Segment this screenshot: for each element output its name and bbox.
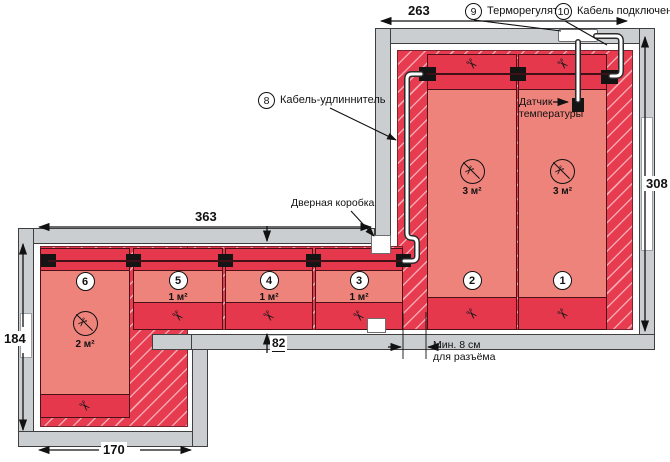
leader-extension-cable	[330, 108, 396, 140]
dim-hall-width: 363	[193, 209, 219, 224]
extension-cable-label: Кабель-удлиннитель	[280, 94, 386, 106]
min-gap-line2: для разъёма	[433, 351, 495, 363]
min-gap-label: Мин. 8 см для разъёма	[433, 339, 495, 363]
callout-9: 9	[465, 3, 482, 20]
heated-floor-plan: ✂ ✂ 3 м² 2 ✂ ✂ ✂ 3 м² 1 ✂ 3 1 м² ✂ 4 1 м…	[0, 0, 670, 462]
door-frame-label: Дверная коробка	[291, 197, 374, 209]
sensor-label-line2: температуры	[519, 108, 583, 120]
annotation-lines	[0, 0, 670, 462]
dim-hall-bottom-width: 170	[101, 442, 127, 457]
sensor-label-line1: Датчик	[519, 96, 583, 108]
extension-cable	[404, 74, 421, 261]
sensor-label: Датчик температуры	[519, 96, 583, 120]
leader-door-frame	[351, 211, 374, 236]
connection-cable-label: Кабель подключения	[577, 5, 670, 17]
dim-hall-left-height: 184	[2, 331, 28, 346]
callout-8: 8	[258, 92, 275, 109]
dim-doorway-width: 82	[270, 336, 287, 350]
connection-cable	[596, 36, 621, 76]
min-gap-line1: Мин. 8 см	[433, 339, 495, 351]
connection-cable-outline	[596, 36, 621, 76]
callout-10: 10	[555, 3, 572, 20]
dim-room-height: 308	[644, 176, 670, 191]
dim-room-width: 263	[406, 3, 432, 18]
